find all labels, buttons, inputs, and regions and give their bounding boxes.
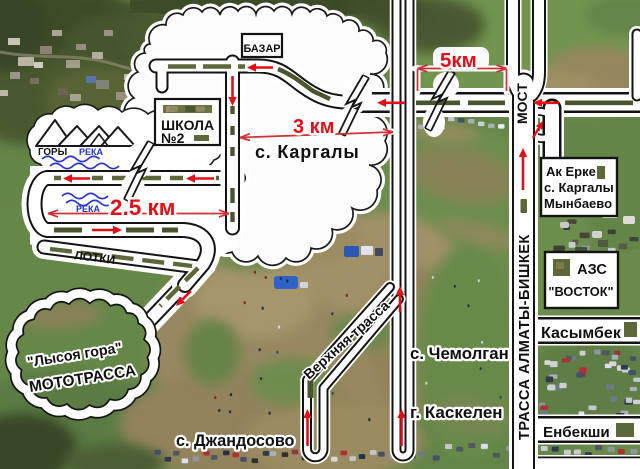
svg-text:ТРАССА АЛМАТЫ-БИШКЕК: ТРАССА АЛМАТЫ-БИШКЕК	[517, 234, 533, 440]
svg-text:5км: 5км	[440, 49, 477, 72]
svg-text:"ВОСТОК": "ВОСТОК"	[548, 284, 613, 299]
svg-text:№2: №2	[161, 130, 185, 146]
svg-text:МОСТ: МОСТ	[514, 83, 530, 124]
svg-text:с. Каргалы: с. Каргалы	[544, 180, 614, 195]
svg-text:РЕКА: РЕКА	[79, 147, 103, 157]
svg-text:РЕКА: РЕКА	[76, 204, 100, 214]
svg-text:Мынбаево: Мынбаево	[544, 196, 612, 211]
svg-text:ГОРЫ: ГОРЫ	[38, 147, 67, 158]
svg-text:с. Каргалы: с. Каргалы	[255, 142, 360, 162]
svg-text:Касымбек: Касымбек	[541, 325, 622, 342]
svg-text:г. Каскелен: г. Каскелен	[410, 403, 503, 422]
svg-text:с. Чемолган: с. Чемолган	[410, 344, 509, 363]
svg-text:2.5 км: 2.5 км	[110, 195, 175, 220]
svg-text:Енбекши: Енбекши	[543, 424, 610, 441]
svg-text:АЗС: АЗС	[577, 262, 607, 278]
svg-text:БАЗАР: БАЗАР	[244, 43, 281, 55]
svg-text:3 км: 3 км	[293, 116, 334, 138]
svg-text:Ак Ерке: Ак Ерке	[546, 164, 596, 179]
svg-text:с. Джандосово: с. Джандосово	[176, 432, 295, 450]
